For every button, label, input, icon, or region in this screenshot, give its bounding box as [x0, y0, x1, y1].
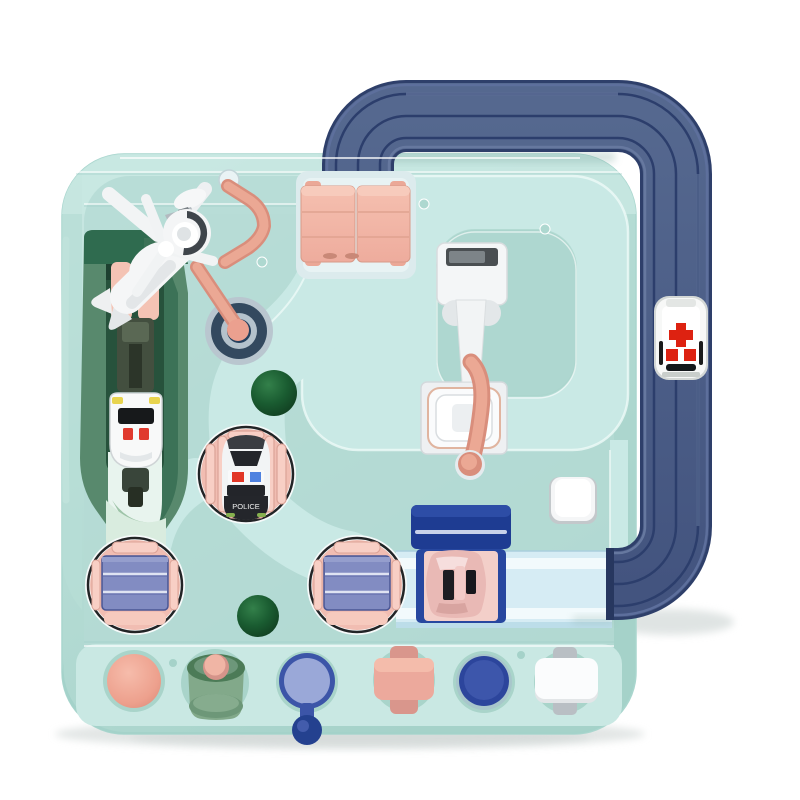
svg-text:POLICE: POLICE [232, 502, 260, 511]
